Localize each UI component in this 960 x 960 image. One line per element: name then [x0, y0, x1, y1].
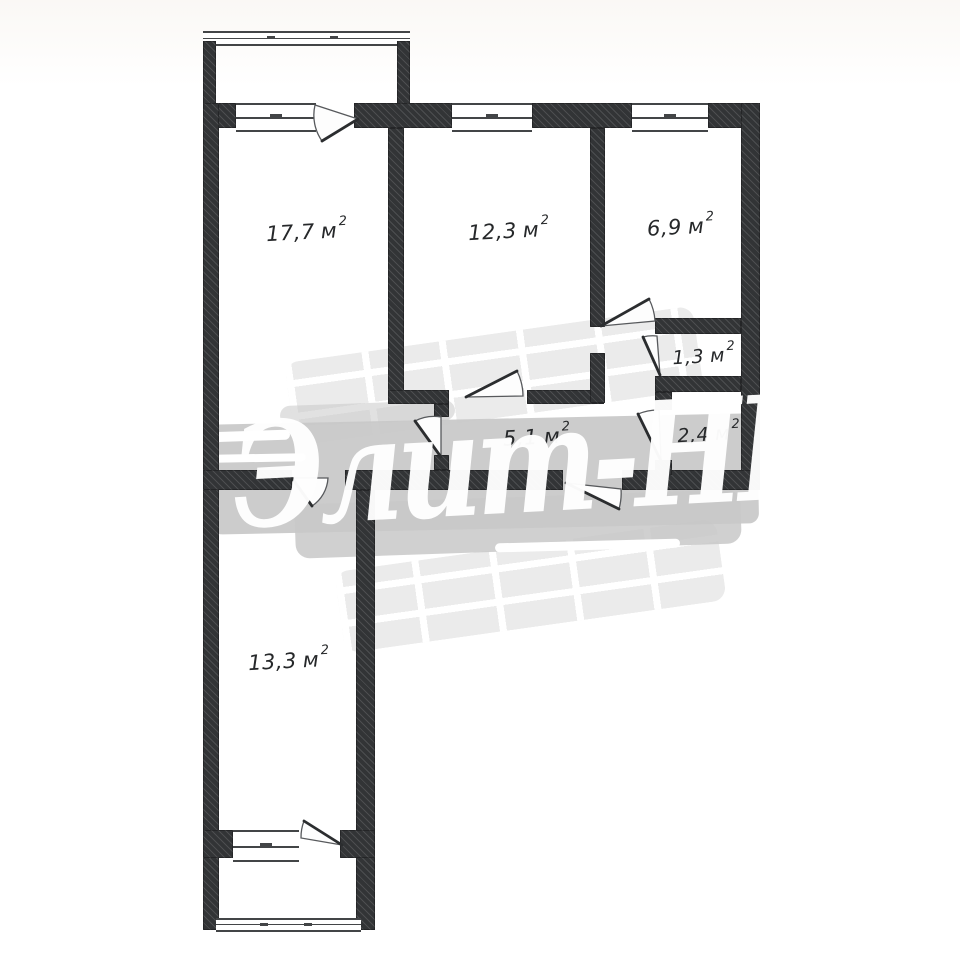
room-area-value: 13,3: [247, 649, 297, 676]
room-area-value: 12,3: [467, 219, 517, 246]
area-unit-sup: 2: [320, 643, 330, 658]
room-label-17-7: 17,7м2: [265, 218, 346, 246]
room-area-value: 17,7: [265, 220, 315, 247]
room-label-6-9: 6,9м2: [646, 213, 713, 240]
watermark-text: Элит-НН: [228, 360, 844, 561]
area-unit: м: [709, 345, 725, 368]
area-unit-sup: 2: [540, 213, 550, 228]
area-unit: м: [320, 218, 338, 243]
room-label-13-3: 13,3м2: [247, 647, 328, 675]
area-unit: м: [302, 647, 320, 672]
room-area-value: 1,3: [672, 346, 705, 370]
area-unit: м: [522, 217, 540, 242]
area-unit-sup: 2: [726, 339, 736, 354]
area-unit: м: [687, 214, 705, 239]
area-unit-sup: 2: [338, 214, 348, 229]
floor-plan: 17,7м2 12,3м2 6,9м2 1,3м2 2,4м2 5,1м2 13…: [0, 0, 960, 960]
room-label-12-3: 12,3м2: [467, 217, 548, 245]
room-area-value: 6,9: [646, 215, 682, 241]
area-unit-sup: 2: [705, 209, 715, 224]
